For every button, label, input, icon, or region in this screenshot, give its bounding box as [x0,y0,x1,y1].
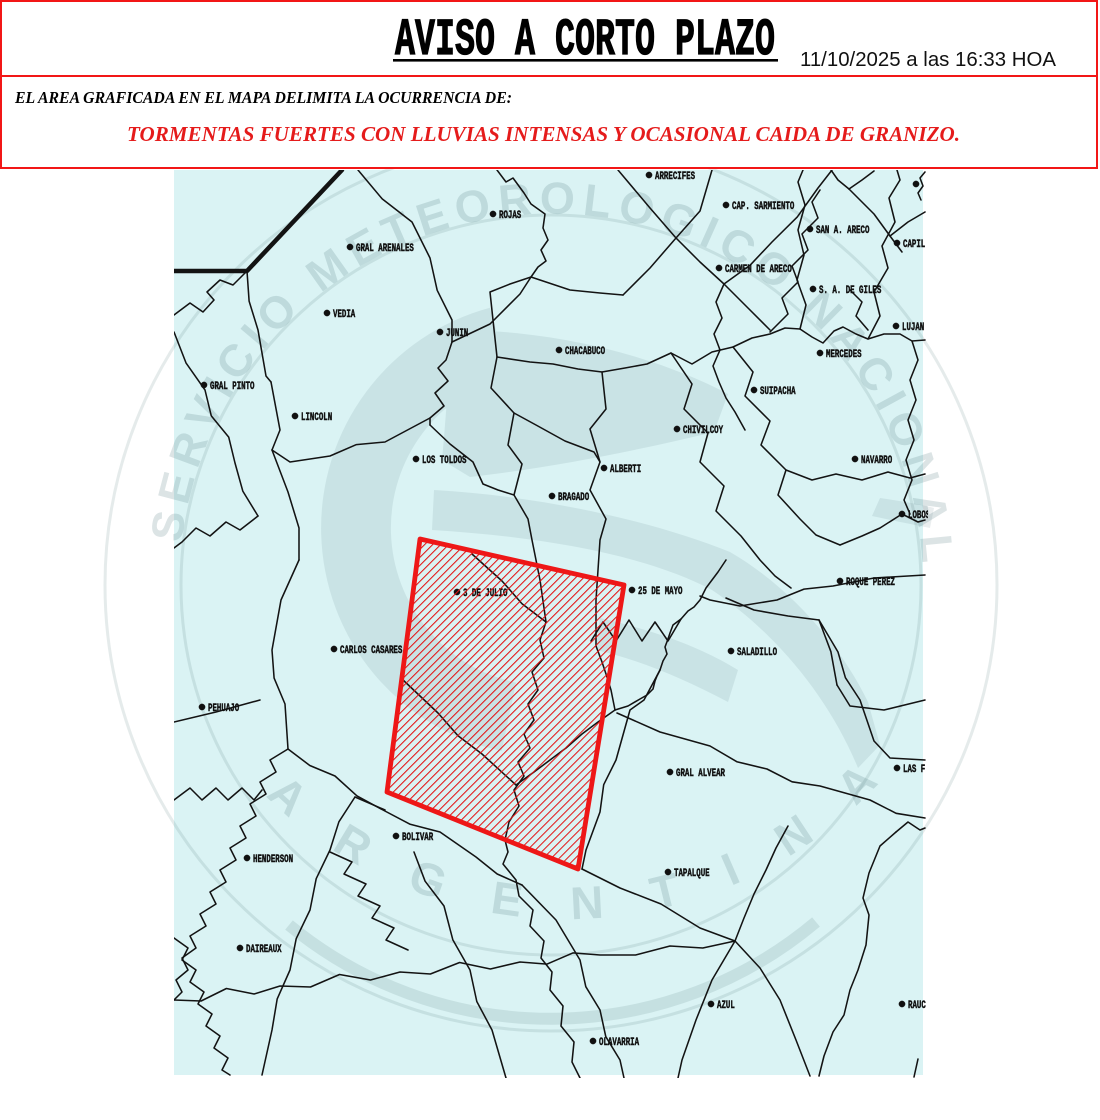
svg-text:CHACABUCO: CHACABUCO [565,346,605,358]
svg-text:GRAL ARENALES: GRAL ARENALES [356,243,414,255]
svg-text:SALADILLO: SALADILLO [737,647,777,659]
svg-text:GRAL PINTO: GRAL PINTO [210,381,255,393]
svg-text:MERCEDES: MERCEDES [826,349,862,361]
svg-text:CHIVILCOY: CHIVILCOY [683,425,723,437]
svg-text:GRAL ALVEAR: GRAL ALVEAR [676,768,725,780]
svg-text:LOS TOLDOS: LOS TOLDOS [422,455,467,467]
svg-text:ARRECIFES: ARRECIFES [655,171,695,183]
svg-text:TORMENTAS FUERTES CON LLUVIAS: TORMENTAS FUERTES CON LLUVIAS INTENSAS Y… [127,122,960,146]
svg-text:BOLIVAR: BOLIVAR [402,832,434,844]
svg-text:LOBOS: LOBOS [908,510,931,522]
svg-text:11/10/2025 a las 16:33 HOA: 11/10/2025 a las 16:33 HOA [800,48,1056,71]
svg-text:SAN A. ARECO: SAN A. ARECO [816,225,870,237]
svg-text:BRAGADO: BRAGADO [558,492,590,504]
svg-text:CARMEN DE ARECO: CARMEN DE ARECO [725,264,792,276]
svg-text:TAPALQUE: TAPALQUE [674,868,710,880]
svg-text:CARLOS CASARES: CARLOS CASARES [340,645,403,657]
svg-text:CAPIL: CAPIL [903,239,925,251]
svg-text:25 DE MAYO: 25 DE MAYO [638,586,683,598]
svg-text:ROQUE PEREZ: ROQUE PEREZ [846,577,895,589]
svg-text:EL AREA GRAFICADA EN EL MAPA D: EL AREA GRAFICADA EN EL MAPA DELIMITA LA… [14,88,512,107]
svg-text:CAP. SARMIENTO: CAP. SARMIENTO [732,201,795,213]
svg-text:HENDERSON: HENDERSON [253,854,293,866]
svg-text:VEDIA: VEDIA [333,309,356,321]
svg-text:LINCOLN: LINCOLN [301,412,332,424]
svg-text:ALBERTI: ALBERTI [610,464,641,476]
svg-text:S. A. DE GILES: S. A. DE GILES [819,285,882,297]
svg-text:OLAVARRIA: OLAVARRIA [599,1037,639,1049]
svg-text:NAVARRO: NAVARRO [861,455,893,467]
svg-text:LAS F: LAS F [903,764,925,776]
svg-text:AZUL: AZUL [717,1000,735,1012]
svg-text:RAUC: RAUC [908,1000,926,1012]
svg-text:DAIREAUX: DAIREAUX [246,944,282,956]
svg-text:SUIPACHA: SUIPACHA [760,386,796,398]
svg-text:JUNIN: JUNIN [446,328,468,340]
svg-text:LUJAN: LUJAN [902,322,924,334]
svg-text:ROJAS: ROJAS [499,210,522,222]
svg-text:PEHUAJO: PEHUAJO [208,703,240,715]
